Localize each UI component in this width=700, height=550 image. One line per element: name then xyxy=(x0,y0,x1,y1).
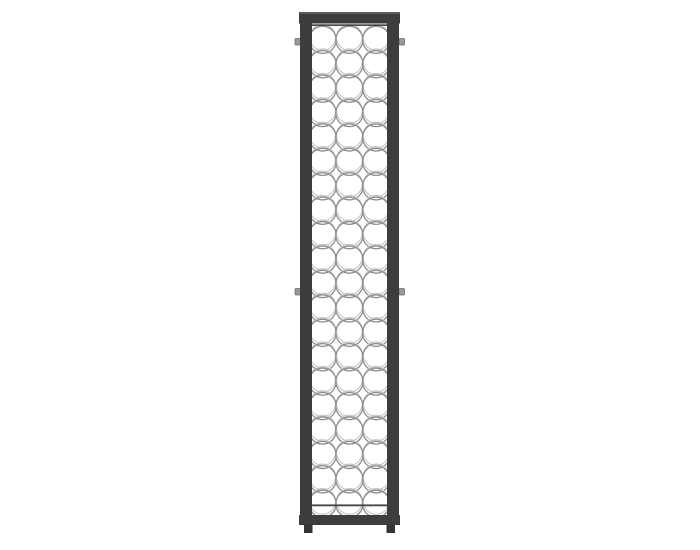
bottle-ring-front xyxy=(309,490,336,517)
bottle-ring-front xyxy=(336,490,363,517)
frame-top-bar-highlight xyxy=(300,12,400,14)
frame-left-post xyxy=(300,12,312,525)
wall-bracket-right-middle xyxy=(399,289,405,296)
frame-top-rail xyxy=(306,24,393,26)
frame-bottom-rail xyxy=(306,504,393,506)
left-foot xyxy=(304,524,313,533)
bottle-grid xyxy=(309,25,390,518)
bottle-ring-front xyxy=(363,490,390,517)
right-foot xyxy=(387,524,396,533)
wall-bracket-right-top xyxy=(399,39,405,46)
wall-bracket-left-top xyxy=(295,39,301,46)
frame-bottom-bar xyxy=(299,515,400,525)
bottle-ring-back xyxy=(363,25,389,51)
wine-rack xyxy=(0,0,700,550)
bottle-ring-back xyxy=(310,25,336,51)
bottle-ring-back xyxy=(337,25,363,51)
wall-bracket-left-middle xyxy=(295,289,301,296)
product-photo xyxy=(0,0,700,550)
frame-right-post xyxy=(387,12,399,525)
